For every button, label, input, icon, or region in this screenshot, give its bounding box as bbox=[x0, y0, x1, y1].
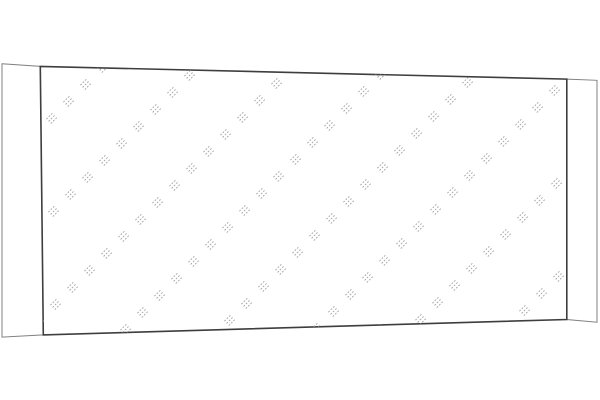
mirror-panel-drawing bbox=[0, 0, 600, 400]
mirror-left-edge-strip bbox=[2, 64, 43, 337]
mirror-glass-face bbox=[40, 66, 567, 335]
mirror-right-edge-strip bbox=[567, 79, 597, 322]
illustration-canvas bbox=[0, 0, 600, 400]
